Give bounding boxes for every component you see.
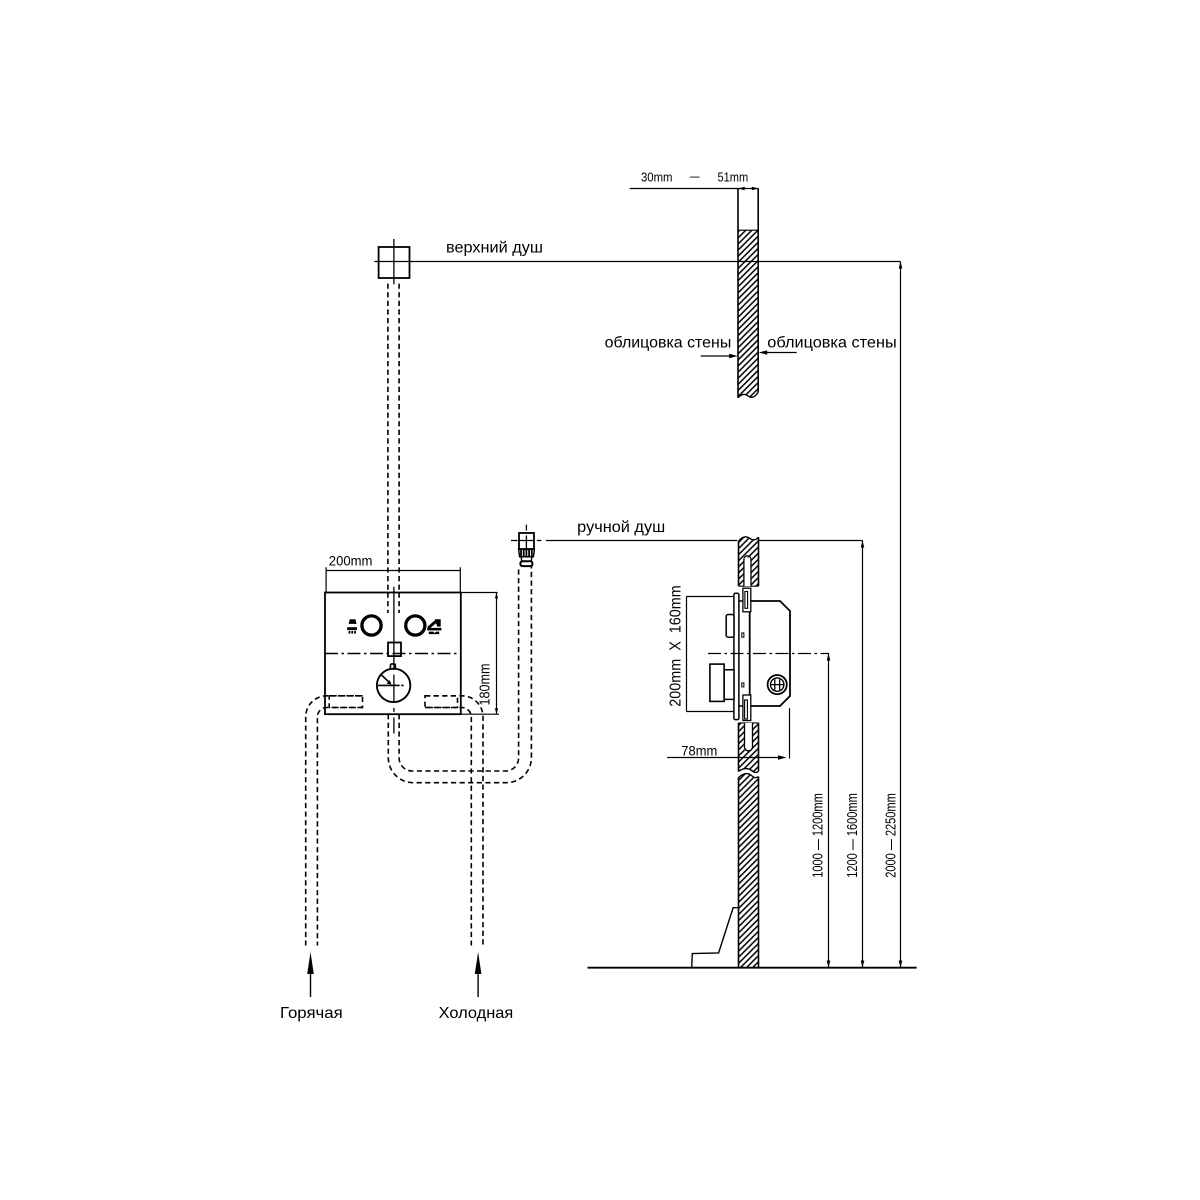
svg-text:200mm: 200mm [329,554,373,569]
svg-text:1000 — 1200mm: 1000 — 1200mm [810,793,827,878]
svg-text:облицовка стены: облицовка стены [605,335,732,352]
svg-text:200mm X 160mm: 200mm X 160mm [668,585,685,706]
svg-text:1200 — 1600mm: 1200 — 1600mm [844,793,861,878]
svg-text:верхний душ: верхний душ [446,240,543,257]
svg-text:—: — [690,169,700,184]
svg-text:ручной душ: ручной душ [577,519,665,536]
svg-text:78mm: 78mm [681,744,717,759]
svg-text:180mm: 180mm [477,664,494,706]
svg-text:51mm: 51mm [718,170,749,185]
svg-text:Холодная: Холодная [439,1005,514,1022]
svg-text:облицовка стены: облицовка стены [767,335,896,352]
svg-text:30mm: 30mm [641,170,673,185]
svg-text:Горячая: Горячая [280,1005,343,1022]
svg-text:2000 — 2250mm: 2000 — 2250mm [883,793,900,878]
